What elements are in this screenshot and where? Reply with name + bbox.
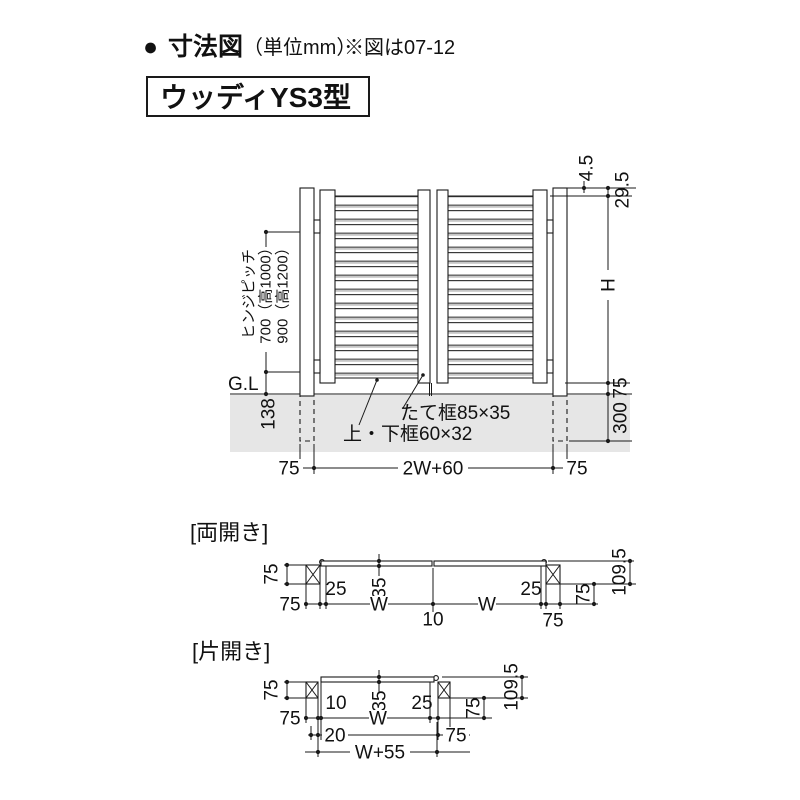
hinge-pitch-700: 700（高1000） — [257, 240, 274, 343]
header: ● 寸法図 （単位mm） ※図は07-12 ウッディYS3型 — [143, 33, 455, 116]
dim-138: 138 — [259, 398, 280, 430]
dim-20: 20 — [324, 726, 345, 747]
section-double-swing: [両開き] 75 35 — [190, 520, 636, 632]
dim-109-5: 109.5 — [502, 663, 523, 711]
left-stile — [320, 190, 335, 383]
right-stile — [533, 190, 547, 383]
unit-label: （単位mm） — [243, 36, 356, 59]
dim-300: 300 — [611, 402, 632, 434]
section-single-swing: [片開き] 75 35 — [192, 639, 528, 764]
dim-w-leaf: W — [369, 709, 387, 730]
gl-label: G.L — [228, 374, 259, 395]
left-leaf-slats — [335, 196, 418, 378]
hinge-icon — [547, 360, 553, 373]
dim-75-post-width-left: 75 — [279, 709, 300, 730]
dim-75-post-depth: 75 — [262, 563, 283, 584]
dim-2w-60: 2W+60 — [403, 459, 464, 480]
jogegamachi-note: 上・下框60×32 — [343, 423, 472, 445]
hinge-icon — [314, 360, 320, 373]
dim-75-right-vertical: 75 — [464, 697, 485, 718]
right-leaf-section — [434, 561, 546, 566]
dim-H: H — [599, 278, 620, 292]
dim-w-55-total: W+55 — [355, 743, 405, 764]
page-title: 寸法図 — [168, 33, 243, 61]
section-single-label: [片開き] — [192, 639, 270, 664]
dim-109-5: 109.5 — [610, 548, 631, 596]
dim-10-center-gap: 10 — [422, 610, 443, 631]
dimension-diagram-page: ● 寸法図 （単位mm） ※図は07-12 ウッディYS3型 — [0, 0, 800, 800]
dim-29-5: 29.5 — [613, 172, 634, 209]
dim-10-latch-gap: 10 — [325, 693, 346, 714]
hinge-icon — [547, 220, 553, 233]
right-leaf-slats — [448, 196, 533, 378]
dim-75-post-width-left: 75 — [279, 595, 300, 616]
dim-w-left: W — [370, 595, 388, 616]
dim-75-right-vertical: 75 — [574, 583, 595, 604]
section-double-label: [両開き] — [190, 520, 268, 545]
gate-leaves — [314, 190, 553, 396]
dim-25-hinge-gap: 25 — [411, 693, 432, 714]
dim-25-right: 25 — [520, 579, 541, 600]
left-leaf-section — [321, 561, 432, 566]
elevation-drawing: ヒンジピッチ 700（高1000） 900（高1200） G.L 138 4.5… — [228, 155, 636, 480]
tategamachi-note: たて框85×35 — [400, 402, 510, 424]
dim-75-right: 75 — [611, 377, 632, 398]
hinge-pitch-900: 900（高1200） — [274, 240, 291, 343]
hinge-pitch-label: ヒンジピッチ — [240, 249, 257, 339]
dimension-diagram-canvas: ● 寸法図 （単位mm） ※図は07-12 ウッディYS3型 — [0, 0, 800, 800]
dim-75-post-depth: 75 — [262, 679, 283, 700]
center-right-stile — [437, 190, 448, 383]
hinge-icon — [314, 220, 320, 233]
figure-note: ※図は07-12 — [344, 37, 455, 59]
dim-75-post-width-right: 75 — [542, 611, 563, 632]
dim-75-post-width-right: 75 — [445, 726, 466, 747]
dim-75-bottom-left: 75 — [278, 459, 299, 480]
title-bullet-icon: ● — [143, 33, 158, 61]
dim-w-right: W — [478, 595, 496, 616]
dim-4-5: 4.5 — [577, 155, 598, 181]
center-left-stile — [418, 190, 430, 383]
dim-75-bottom-right: 75 — [566, 459, 587, 480]
dim-25-left: 25 — [325, 579, 346, 600]
model-name: ウッディYS3型 — [160, 81, 351, 113]
